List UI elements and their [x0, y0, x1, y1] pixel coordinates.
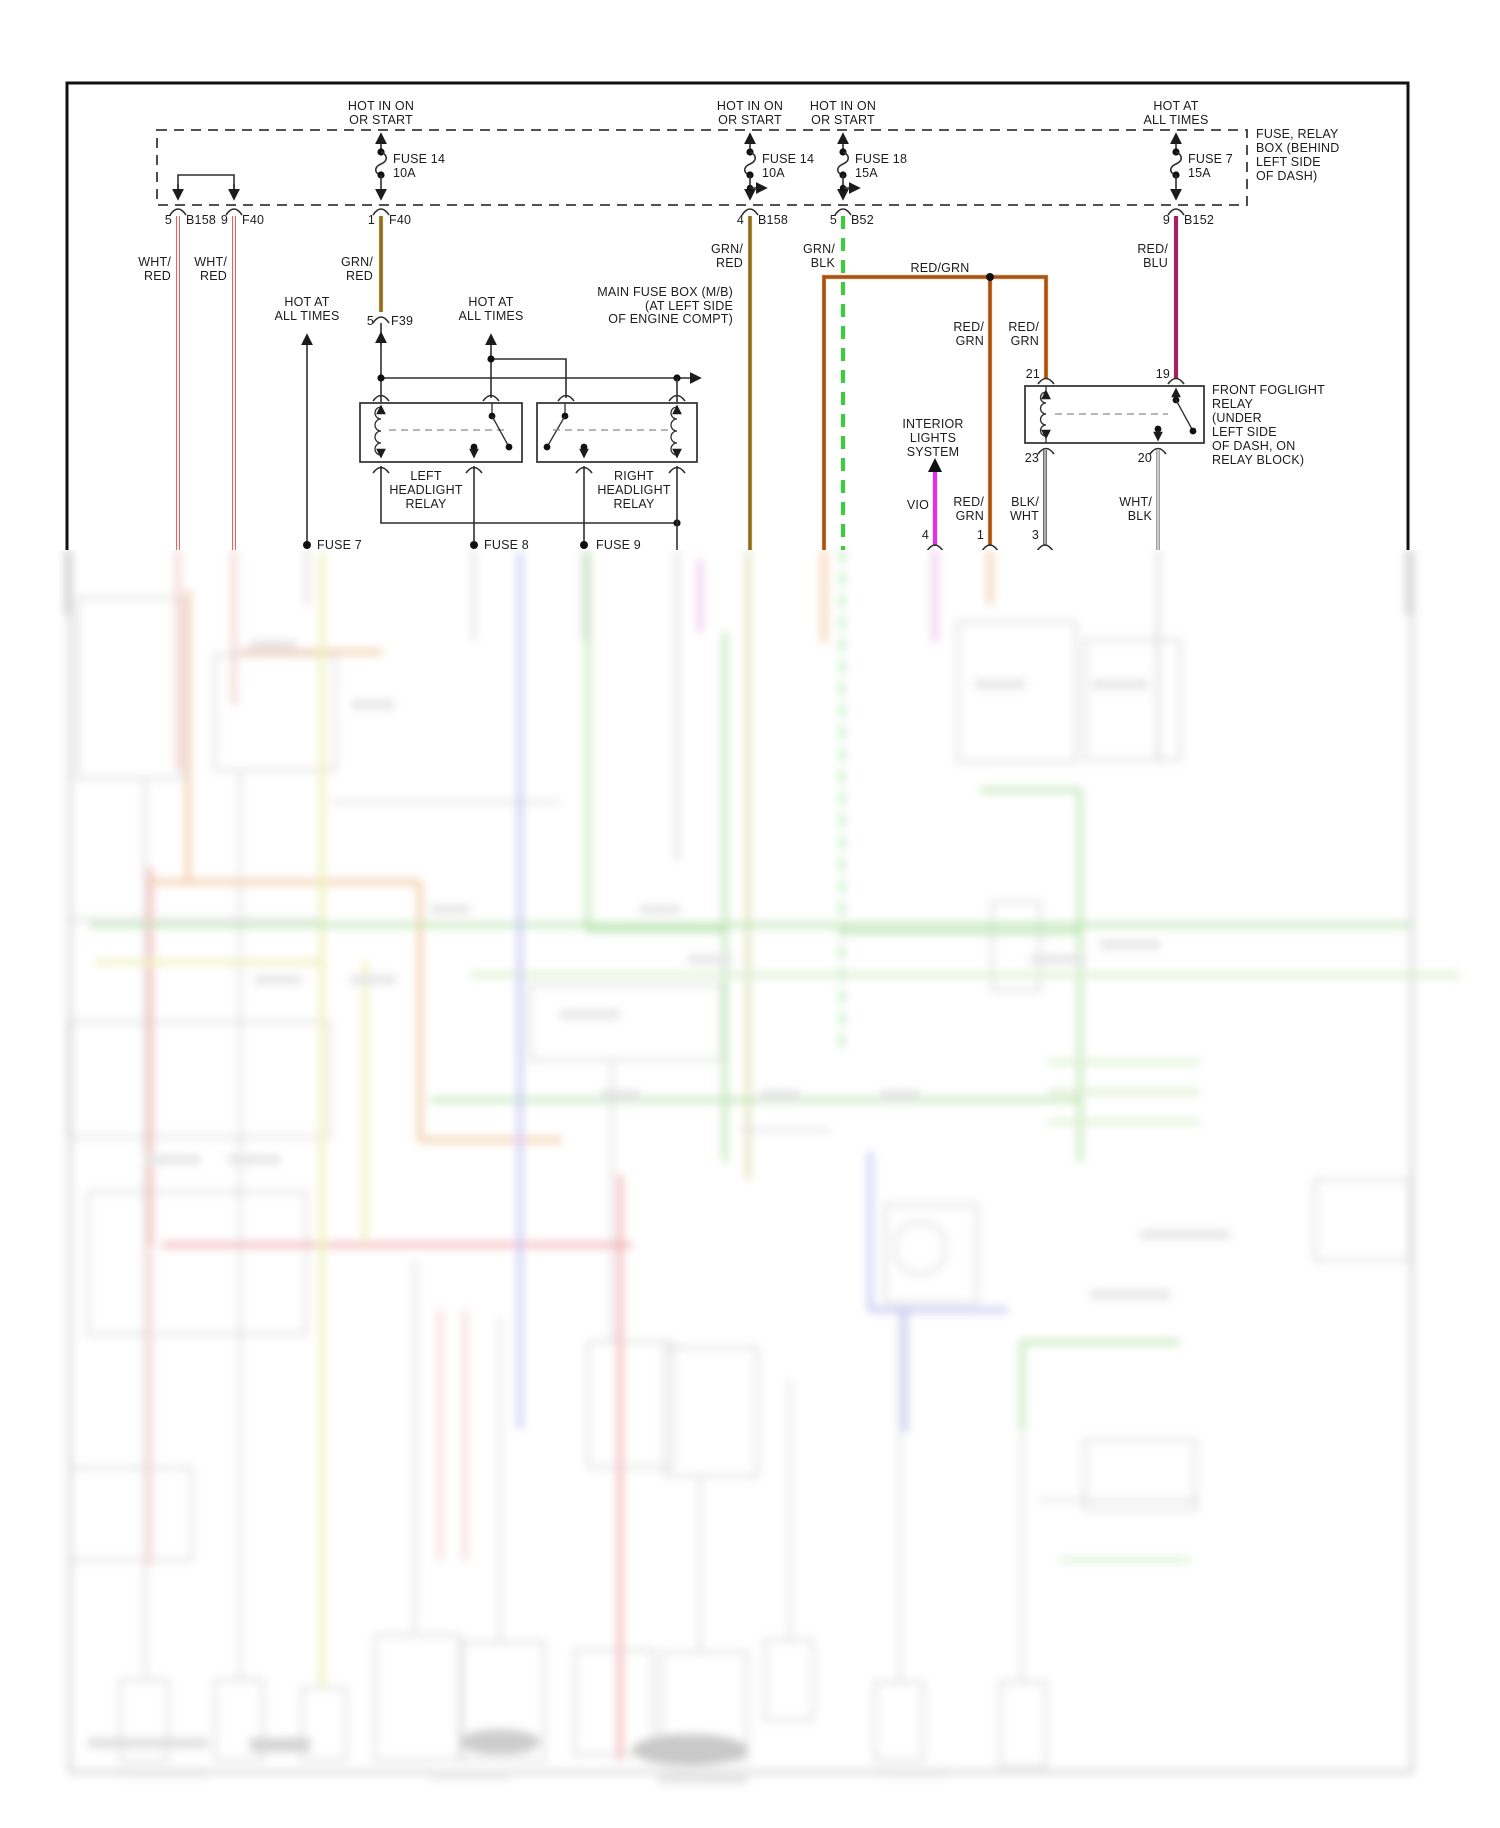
header-hot-at-all-times-3b: ALL TIMES — [458, 309, 523, 323]
wire-label: GRN — [956, 509, 984, 523]
foglight-note: OF DASH, ON — [1212, 439, 1295, 453]
header-hot-in-on-3: HOT IN ON — [810, 99, 876, 113]
pin-1: 1 — [977, 528, 984, 542]
fuse-7-rating: 15A — [1188, 166, 1211, 180]
pin-19: 19 — [1156, 367, 1170, 381]
fuse-18-rating: 15A — [855, 166, 878, 180]
wire-label: GRN — [956, 334, 984, 348]
blurred-diagram-region — [0, 550, 1500, 1828]
header-hot-in-on-2: HOT IN ON — [717, 99, 783, 113]
right-relay-caption: RIGHT — [614, 469, 654, 483]
wire-label: RED — [144, 269, 171, 283]
wire-label: RED — [200, 269, 227, 283]
connector-f39: 5 F39 — [367, 314, 413, 328]
interior-lights-caption: INTERIOR — [902, 417, 963, 431]
fuse-14-b: FUSE 14 10A — [745, 134, 814, 199]
fuse-relay-box-note: FUSE, RELAY BOX (BEHIND LEFT SIDE OF DAS… — [1256, 127, 1339, 183]
wire-label: RED — [716, 256, 743, 270]
wire-vio — [928, 458, 942, 546]
wire-label: BLK — [811, 256, 836, 270]
wire-label: GRN/ — [711, 242, 743, 256]
headlight-circuit-diagram: HOT IN ON OR START HOT IN ON OR START HO… — [0, 0, 1500, 560]
left-relay-caption: LEFT — [410, 469, 442, 483]
header-or-start-1: OR START — [349, 113, 413, 127]
blurred-shapes — [67, 550, 1460, 1784]
main-fuse-box-note-2: (AT LEFT SIDE — [645, 299, 733, 313]
wire-label: WHT — [1010, 509, 1039, 523]
header-or-start-3: OR START — [811, 113, 875, 127]
left-headlight-relay — [360, 403, 522, 462]
header-hot-at-all-times-2b: ALL TIMES — [274, 309, 339, 323]
interior-lights-caption: LIGHTS — [910, 431, 956, 445]
fuse-box-bridge-loop — [178, 175, 234, 199]
connector-name: B158 — [186, 213, 216, 227]
connector-pin: 9 — [221, 213, 228, 227]
foglight-note: FRONT FOGLIGHT — [1212, 383, 1325, 397]
wire-label: BLK — [1128, 509, 1153, 523]
interior-lights-caption: SYSTEM — [907, 445, 960, 459]
fuse-14-b-name: FUSE 14 — [762, 152, 814, 166]
wire-label: RED/ — [1008, 320, 1039, 334]
relay-captions: LEFT HEADLIGHT RELAY RIGHT HEADLIGHT REL… — [389, 469, 671, 511]
fuse-relay-box — [157, 130, 1247, 205]
wire-label-vio: VIO — [907, 498, 929, 512]
main-fuse-box-note-1: MAIN FUSE BOX (M/B) — [597, 285, 733, 299]
connector-pin: 5 — [367, 314, 374, 328]
connector-name: B158 — [758, 213, 788, 227]
right-relay-caption: HEADLIGHT — [597, 483, 671, 497]
wire-label: GRN — [1011, 334, 1039, 348]
main-fuse-box-note-3: OF ENGINE COMPT) — [608, 312, 733, 326]
fuse-18-name: FUSE 18 — [855, 152, 907, 166]
right-relay-caption: RELAY — [613, 497, 655, 511]
connector-name: B152 — [1184, 213, 1214, 227]
interior-lights-system: INTERIOR LIGHTS SYSTEM — [902, 417, 963, 459]
header-hot-at-all-times-1b: ALL TIMES — [1143, 113, 1208, 127]
header-or-start-2: OR START — [718, 113, 782, 127]
wire-label-red-grn: RED/GRN — [910, 261, 969, 275]
fuse-symbols: FUSE 14 10A FUSE 14 10A — [178, 134, 1233, 199]
pin-20: 20 — [1138, 451, 1152, 465]
right-headlight-relay — [537, 403, 697, 462]
fuse-7-name: FUSE 7 — [1188, 152, 1233, 166]
fuse-box-note-2: BOX (BEHIND — [1256, 141, 1339, 155]
fuse-14-a-name: FUSE 14 — [393, 152, 445, 166]
header-hot-at-all-times-2: HOT AT — [284, 295, 329, 309]
pin-4: 4 — [922, 528, 929, 542]
wire-label: RED — [346, 269, 373, 283]
front-foglight-relay: 21 19 23 20 FRONT FOGLIGHT RELAY (UNDER … — [1025, 367, 1325, 467]
header-hot-at-all-times-3: HOT AT — [468, 295, 513, 309]
connector-name: B52 — [851, 213, 874, 227]
fuse-14-b-rating: 10A — [762, 166, 785, 180]
fuse-14-a-rating: 10A — [393, 166, 416, 180]
connector-name: F40 — [389, 213, 411, 227]
fuse-box-note-4: OF DASH) — [1256, 169, 1317, 183]
wire-label: RED/ — [953, 495, 984, 509]
front-foglight-relay-note: FRONT FOGLIGHT RELAY (UNDER LEFT SIDE OF… — [1212, 383, 1325, 467]
power-source-labels: HOT IN ON OR START HOT IN ON OR START HO… — [274, 99, 1208, 323]
header-hot-in-on-1: HOT IN ON — [348, 99, 414, 113]
fuse-box-note-3: LEFT SIDE — [1256, 155, 1321, 169]
header-hot-at-all-times-1: HOT AT — [1153, 99, 1198, 113]
wire-label: RED/ — [953, 320, 984, 334]
fuse-14-a: FUSE 14 10A — [376, 134, 445, 199]
left-relay-caption: RELAY — [405, 497, 447, 511]
wire-label: RED/ — [1137, 242, 1168, 256]
wire-label: GRN/ — [341, 255, 373, 269]
connector-pin: 1 — [368, 213, 375, 227]
blurred-wiring-content — [0, 550, 1500, 1828]
headlight-relay-circuit — [303, 323, 700, 550]
wiring-diagram-page: HOT IN ON OR START HOT IN ON OR START HO… — [0, 0, 1500, 1828]
fuse-box-output-connectors: 5 B158 9 F40 1 F40 4 B158 5 B52 9 B152 — [165, 209, 1214, 227]
fuse-box-note-1: FUSE, RELAY — [1256, 127, 1339, 141]
wire-label: WHT/ — [1119, 495, 1152, 509]
foglight-note: RELAY BLOCK) — [1212, 453, 1304, 467]
pin-23: 23 — [1025, 451, 1039, 465]
wire-label: BLU — [1143, 256, 1168, 270]
wire-label: BLK/ — [1011, 495, 1039, 509]
foglight-note: LEFT SIDE — [1212, 425, 1277, 439]
connector-name: F39 — [391, 314, 413, 328]
connector-pin: 9 — [1163, 213, 1170, 227]
connector-name: F40 — [242, 213, 264, 227]
fuse-7: FUSE 7 15A — [1171, 134, 1233, 199]
bottom-connectors: 4 1 3 FUSE 7 FUSE 8 FUSE 9 — [317, 528, 1053, 552]
connector-pin: 5 — [165, 213, 172, 227]
fuse-18: FUSE 18 15A — [838, 134, 907, 199]
foglight-note: RELAY — [1212, 397, 1254, 411]
pin-21: 21 — [1026, 367, 1040, 381]
wire-label: WHT/ — [138, 255, 171, 269]
wire-label: GRN/ — [803, 242, 835, 256]
pin-3: 3 — [1032, 528, 1039, 542]
main-fuse-box-note: MAIN FUSE BOX (M/B) (AT LEFT SIDE OF ENG… — [597, 285, 733, 326]
connector-pin: 5 — [830, 213, 837, 227]
wire-label: WHT/ — [194, 255, 227, 269]
foglight-note: (UNDER — [1212, 411, 1262, 425]
left-relay-caption: HEADLIGHT — [389, 483, 463, 497]
connector-pin: 4 — [737, 213, 744, 227]
